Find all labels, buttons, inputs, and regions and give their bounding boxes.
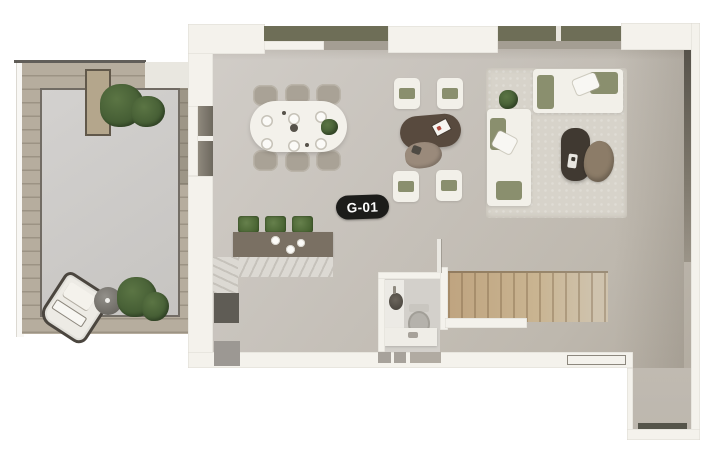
window-left-glass [198,106,213,176]
staircase [448,271,608,322]
plate [315,138,327,150]
wall-left-window-outer [188,106,198,176]
window-band-2-sill [498,41,622,49]
armchair [437,78,463,109]
kitchen-plant-1 [238,216,259,233]
bathroom-sink [389,293,403,310]
wall-bottom-inset-3 [410,352,441,363]
dining-centerpiece-plant [321,119,338,135]
plate [261,138,273,150]
bathroom-faucet [393,286,396,294]
armchair [394,78,420,109]
floor-plan-canvas: G-01 [0,0,723,451]
under-stairs-wall [445,318,527,328]
entry-wall-left [627,368,633,430]
terrace-door-threshold [145,62,188,88]
table-item [282,111,286,115]
entry-threshold [638,423,687,429]
dining-chair [253,150,278,171]
plate [261,115,273,127]
wall-pier-top-mid [388,26,498,53]
wall-bottom-inset-1 [378,352,391,363]
kitchen-bowl-3 [297,239,305,247]
plate [288,140,300,152]
bathroom-wall-top [378,272,448,279]
entry-floor [627,368,700,430]
entry-wall-bottom [627,429,700,440]
wall-corner-top-right [621,23,700,50]
unit-badge-label: G-01 [346,199,378,215]
window-left-mullion [198,136,213,141]
terrace-top-parapet-line [14,60,146,63]
wall-left-lower [188,176,213,368]
door-mat [567,355,626,365]
kitchen-plant-3 [292,216,313,233]
stair-treads [448,273,608,322]
wall-pier-top-left [188,24,265,54]
coffee-table-remote [567,153,578,168]
partition-line [437,239,441,273]
sofa-cushion [537,75,554,109]
armchair [393,171,419,202]
bathroom-wall-left [378,272,385,352]
window-band-1-sub-wall [264,41,324,50]
dark-bowl [290,124,298,132]
kitchen-counter-marble-v [213,257,238,293]
unit-badge[interactable]: G-01 [336,194,390,220]
window-band-1 [264,26,389,41]
window-band-2-mullion [556,26,561,41]
kitchen-door-panel [214,341,240,366]
armchair [436,170,462,201]
kitchen-plant-2 [265,216,286,233]
sofa-cushion [496,181,522,200]
table-item [305,143,309,147]
window-band-1-sill [324,41,389,50]
window-right-glazing [684,50,691,262]
wall-right [691,23,700,432]
dining-chair [316,150,341,171]
wall-bottom-inset-2 [394,352,406,363]
kitchen-bowl-1 [271,236,280,245]
kitchen-bowl-2 [286,245,295,254]
vanity-item [408,332,418,338]
dining-chair [285,151,310,172]
kitchen-island-counter [233,232,333,257]
kitchen-appliance [214,293,239,323]
